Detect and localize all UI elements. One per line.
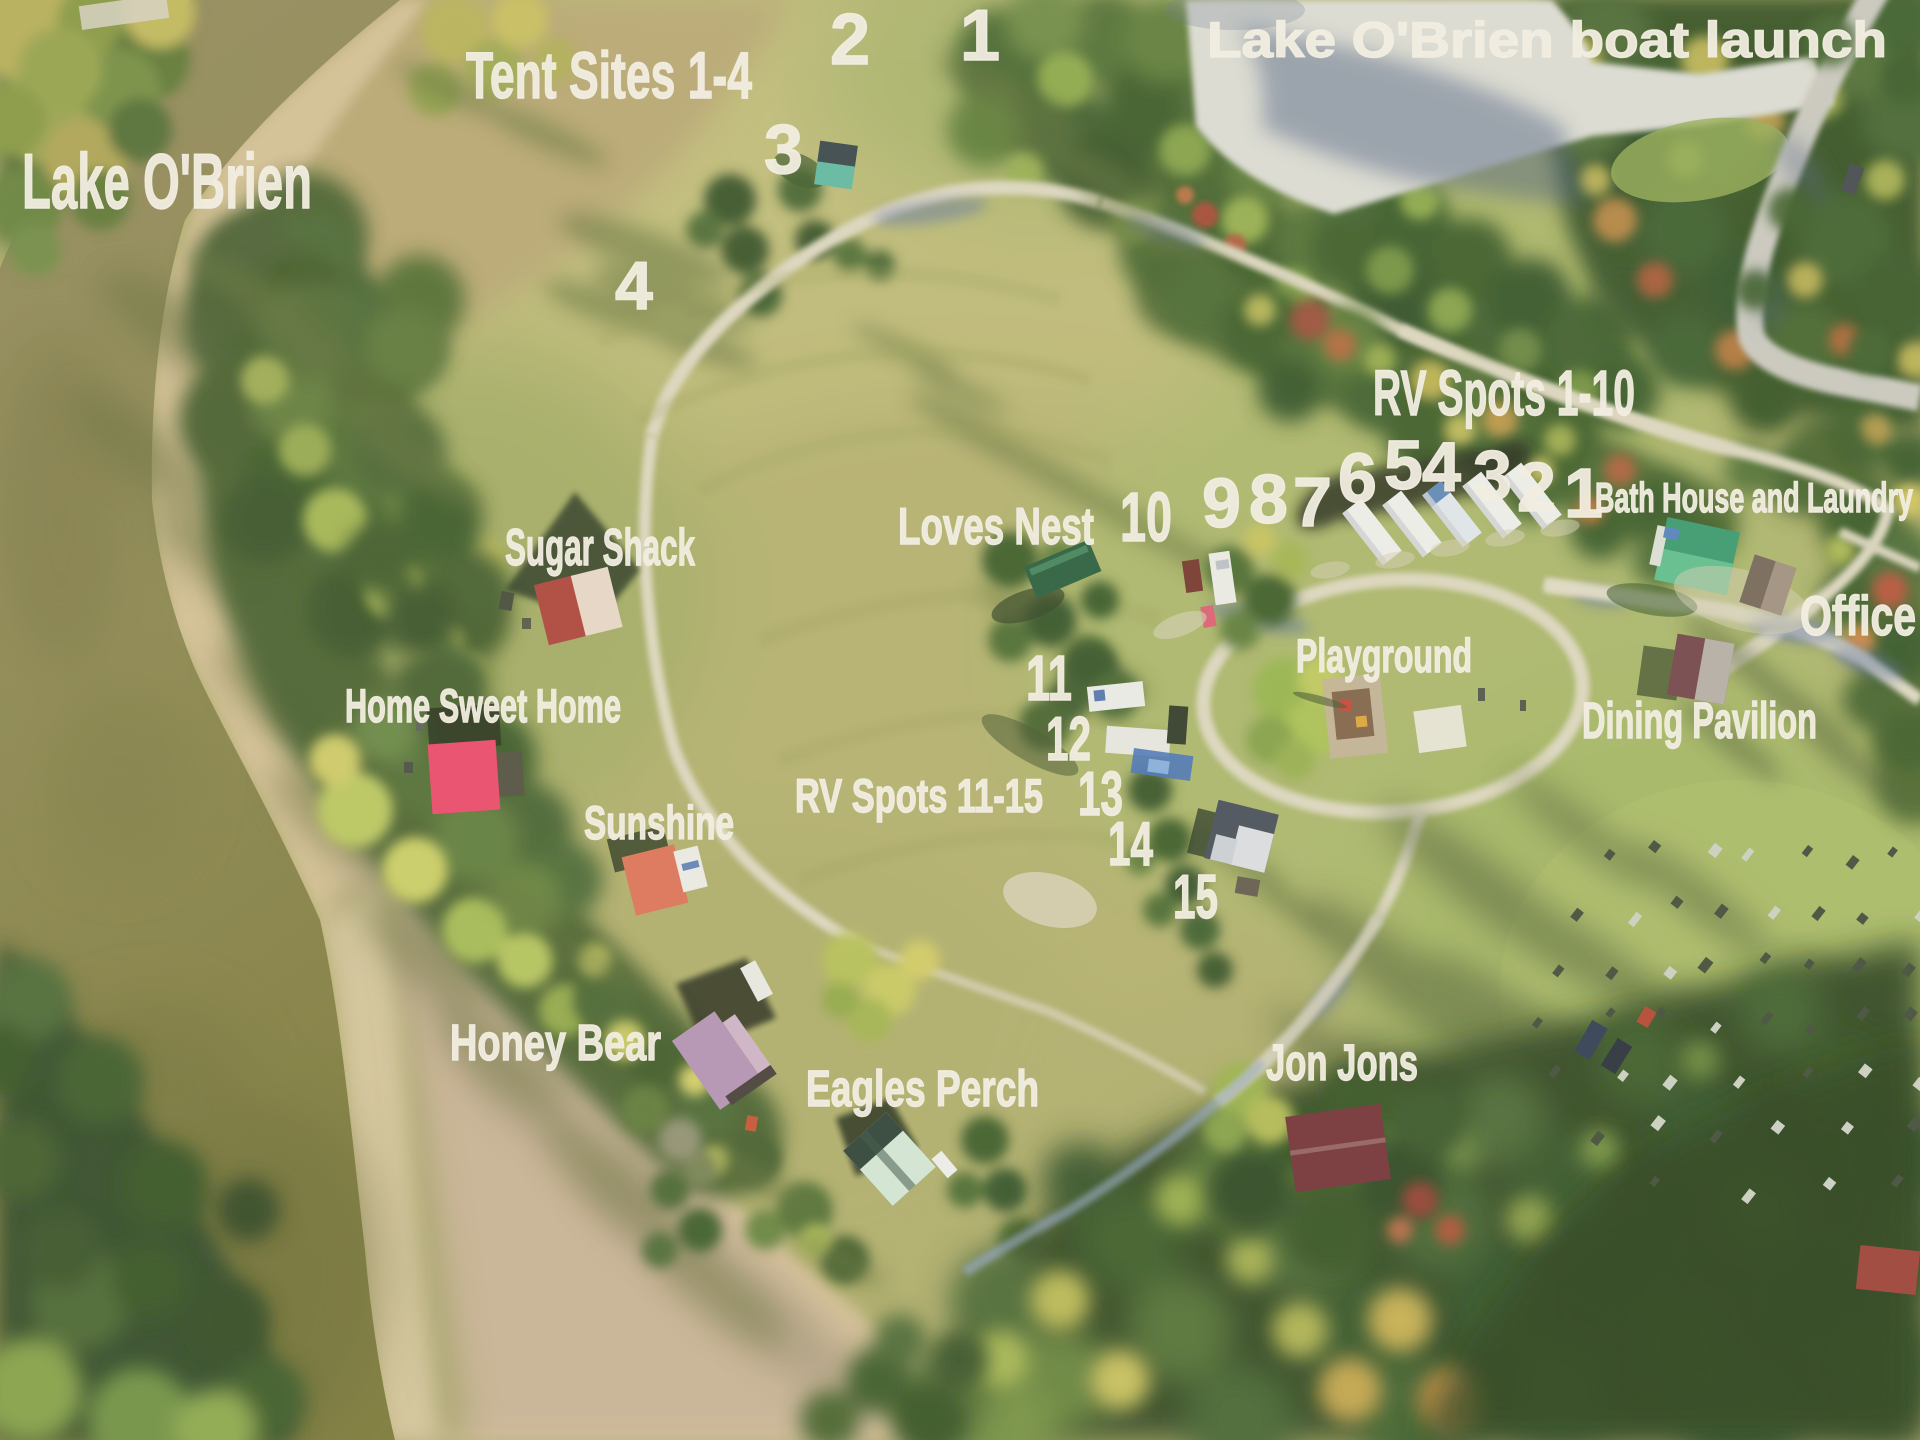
svg-text:Sugar Shack: Sugar Shack: [505, 519, 695, 577]
svg-text:Loves Nest: Loves Nest: [898, 498, 1094, 556]
svg-text:Eagles Perch: Eagles Perch: [806, 1060, 1039, 1117]
svg-text:Honey Bear: Honey Bear: [450, 1014, 661, 1071]
svg-text:6: 6: [1338, 439, 1377, 517]
svg-text:Home Sweet Home: Home Sweet Home: [345, 679, 621, 732]
svg-text:4: 4: [1422, 428, 1461, 506]
svg-text:3: 3: [764, 110, 803, 188]
svg-text:8: 8: [1249, 460, 1288, 538]
svg-text:Jon Jons: Jon Jons: [1266, 1034, 1418, 1091]
svg-text:1: 1: [960, 0, 1000, 76]
svg-text:14: 14: [1108, 810, 1153, 879]
svg-text:Office: Office: [1800, 584, 1916, 647]
svg-text:10: 10: [1120, 478, 1172, 556]
svg-text:Bath House and Laundry: Bath House and Laundry: [1595, 474, 1913, 521]
svg-text:RV Spots 11-15: RV Spots 11-15: [795, 769, 1043, 822]
svg-text:Dining Pavilion: Dining Pavilion: [1582, 692, 1817, 749]
svg-text:RV Spots 1-10: RV Spots 1-10: [1373, 357, 1635, 429]
svg-text:3: 3: [1473, 436, 1512, 514]
svg-text:Lake O'Brien: Lake O'Brien: [22, 137, 312, 225]
svg-text:4: 4: [615, 248, 653, 324]
svg-text:2: 2: [830, 0, 870, 80]
svg-text:15: 15: [1173, 863, 1218, 932]
svg-text:2: 2: [1517, 448, 1556, 526]
svg-text:11: 11: [1026, 642, 1072, 714]
svg-text:Lake O'Brien boat launch: Lake O'Brien boat launch: [1207, 12, 1887, 68]
svg-text:5: 5: [1384, 426, 1423, 504]
svg-text:Tent Sites 1-4: Tent Sites 1-4: [466, 38, 752, 112]
svg-text:9: 9: [1202, 464, 1241, 542]
svg-text:7: 7: [1293, 463, 1332, 541]
svg-text:Sunshine: Sunshine: [584, 796, 734, 849]
svg-text:Playground: Playground: [1296, 629, 1472, 682]
